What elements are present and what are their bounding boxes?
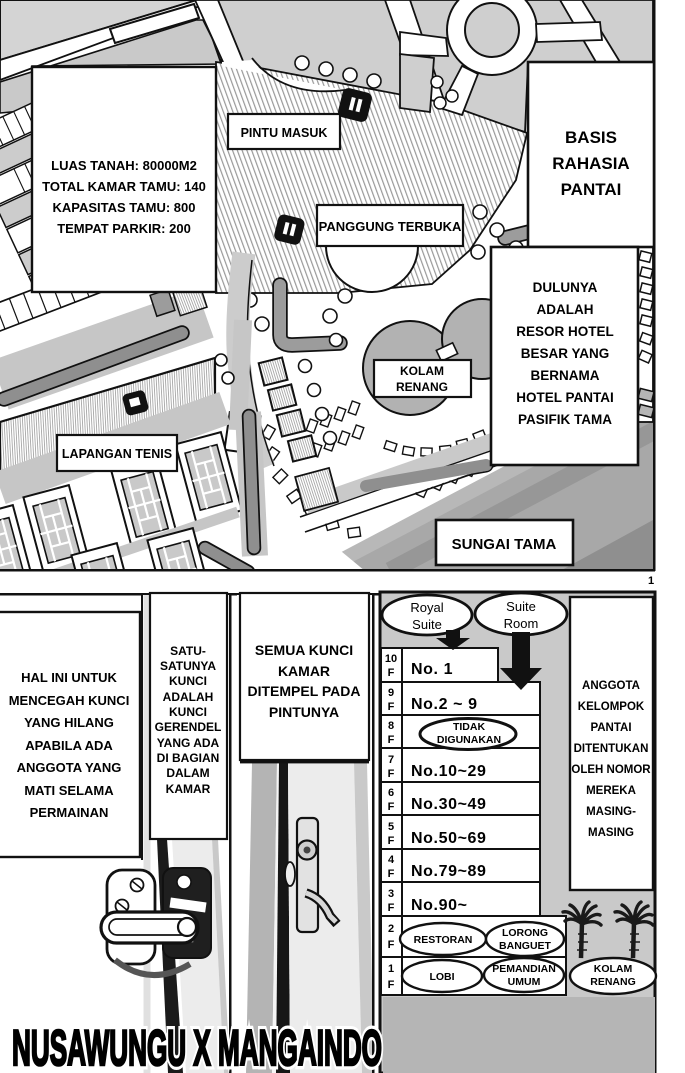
svg-text:2: 2 <box>388 923 394 935</box>
svg-text:PINTU MASUK: PINTU MASUK <box>241 126 328 140</box>
svg-text:KAPASITAS TAMU: 800: KAPASITAS TAMU: 800 <box>52 200 195 215</box>
svg-text:No.79~89: No.79~89 <box>411 863 487 880</box>
svg-text:MASING-: MASING- <box>586 806 636 818</box>
svg-text:BASIS: BASIS <box>565 128 617 147</box>
svg-text:KAMAR: KAMAR <box>166 782 211 796</box>
svg-text:DITENTUKAN: DITENTUKAN <box>574 743 649 755</box>
svg-text:KUNCI: KUNCI <box>169 674 207 688</box>
svg-text:PINTUNYA: PINTUNYA <box>269 704 339 720</box>
svg-text:YANG ADA: YANG ADA <box>157 736 220 750</box>
svg-text:F: F <box>388 835 395 847</box>
svg-text:NUSAWUNGU X MANGAINDO: NUSAWUNGU X MANGAINDO <box>12 1020 382 1073</box>
svg-text:MEREKA: MEREKA <box>586 785 636 797</box>
svg-text:No. 1: No. 1 <box>411 661 453 678</box>
svg-text:LAPANGAN TENIS: LAPANGAN TENIS <box>62 447 172 461</box>
svg-text:ADALAH: ADALAH <box>163 690 214 704</box>
svg-text:KELOMPOK: KELOMPOK <box>578 701 645 713</box>
svg-text:DALAM: DALAM <box>166 766 209 780</box>
svg-text:No.90~: No.90~ <box>411 897 468 914</box>
svg-text:HOTEL PANTAI: HOTEL PANTAI <box>516 390 614 405</box>
svg-text:9: 9 <box>388 687 394 699</box>
svg-text:MENCEGAH KUNCI: MENCEGAH KUNCI <box>9 693 130 708</box>
svg-text:PANTAI: PANTAI <box>590 722 631 734</box>
svg-text:Suite: Suite <box>412 617 442 632</box>
svg-text:RENANG: RENANG <box>590 976 636 988</box>
svg-text:TOTAL KAMAR TAMU: 140: TOTAL KAMAR TAMU: 140 <box>42 179 206 194</box>
svg-text:KAMAR: KAMAR <box>278 663 330 679</box>
svg-text:No.2 ~ 9: No.2 ~ 9 <box>411 696 478 713</box>
svg-text:5: 5 <box>388 821 394 833</box>
svg-text:KOLAM: KOLAM <box>594 963 633 975</box>
svg-text:GERENDEL: GERENDEL <box>155 720 222 734</box>
svg-text:1: 1 <box>648 575 654 587</box>
svg-text:BANGUET: BANGUET <box>499 940 552 952</box>
svg-text:F: F <box>388 902 395 914</box>
svg-text:RESOR HOTEL: RESOR HOTEL <box>516 324 614 339</box>
svg-text:APABILA ADA: APABILA ADA <box>25 738 113 753</box>
svg-text:DULUNYA: DULUNYA <box>533 280 598 295</box>
svg-text:SATUNYA: SATUNYA <box>160 659 216 673</box>
svg-text:ANGGOTA YANG: ANGGOTA YANG <box>17 760 122 775</box>
svg-text:No.30~49: No.30~49 <box>411 796 487 813</box>
svg-text:PASIFIK TAMA: PASIFIK TAMA <box>518 412 612 427</box>
svg-text:KOLAM: KOLAM <box>400 364 444 378</box>
svg-text:TIDAK: TIDAK <box>453 721 485 733</box>
svg-text:F: F <box>388 701 395 713</box>
svg-text:LORONG: LORONG <box>502 927 548 939</box>
svg-text:3: 3 <box>388 888 394 900</box>
svg-text:F: F <box>388 734 395 746</box>
svg-text:F: F <box>388 939 395 951</box>
svg-text:TEMPAT PARKIR: 200: TEMPAT PARKIR: 200 <box>57 221 191 236</box>
svg-text:RENANG: RENANG <box>396 380 448 394</box>
svg-text:SUNGAI TAMA: SUNGAI TAMA <box>452 536 557 553</box>
svg-text:UMUM: UMUM <box>508 976 541 988</box>
svg-text:ADALAH: ADALAH <box>537 302 594 317</box>
svg-text:SEMUA KUNCI: SEMUA KUNCI <box>255 642 353 658</box>
svg-text:F: F <box>388 979 395 991</box>
svg-text:4: 4 <box>388 854 395 866</box>
svg-text:F: F <box>388 868 395 880</box>
svg-text:DIGUNAKAN: DIGUNAKAN <box>437 734 501 746</box>
svg-text:LOBI: LOBI <box>429 971 454 983</box>
svg-text:RESTORAN: RESTORAN <box>414 934 473 946</box>
svg-text:LUAS TANAH: 80000M2: LUAS TANAH: 80000M2 <box>51 158 197 173</box>
svg-text:Royal: Royal <box>410 600 443 615</box>
svg-text:Room: Room <box>504 616 539 631</box>
svg-text:BESAR YANG: BESAR YANG <box>521 346 610 361</box>
svg-text:F: F <box>388 667 395 679</box>
svg-text:PANTAI: PANTAI <box>561 180 622 199</box>
svg-text:10: 10 <box>385 653 397 665</box>
svg-text:SATU-: SATU- <box>170 644 206 658</box>
svg-text:DITEMPEL PADA: DITEMPEL PADA <box>247 683 360 699</box>
svg-text:6: 6 <box>388 787 394 799</box>
svg-text:1: 1 <box>388 963 394 975</box>
svg-text:8: 8 <box>388 720 394 732</box>
svg-text:KUNCI: KUNCI <box>169 705 207 719</box>
svg-text:YANG HILANG: YANG HILANG <box>24 715 114 730</box>
svg-text:ANGGOTA: ANGGOTA <box>582 680 640 692</box>
svg-text:BERNAMA: BERNAMA <box>531 368 600 383</box>
svg-text:HAL INI UNTUK: HAL INI UNTUK <box>21 670 117 685</box>
svg-text:7: 7 <box>388 754 394 766</box>
svg-text:No.50~69: No.50~69 <box>411 830 487 847</box>
svg-text:PEMANDIAN: PEMANDIAN <box>492 963 556 975</box>
svg-text:MATI SELAMA: MATI SELAMA <box>24 783 114 798</box>
svg-text:Suite: Suite <box>506 599 536 614</box>
svg-text:No.10~29: No.10~29 <box>411 763 487 780</box>
svg-text:OLEH NOMOR: OLEH NOMOR <box>571 764 651 776</box>
svg-text:PERMAINAN: PERMAINAN <box>30 805 109 820</box>
svg-text:F: F <box>388 801 395 813</box>
svg-text:PANGGUNG TERBUKA: PANGGUNG TERBUKA <box>319 219 462 234</box>
svg-text:DI BAGIAN: DI BAGIAN <box>157 751 220 765</box>
svg-text:MASING: MASING <box>588 827 634 839</box>
svg-text:F: F <box>388 768 395 780</box>
svg-text:RAHASIA: RAHASIA <box>552 154 629 173</box>
